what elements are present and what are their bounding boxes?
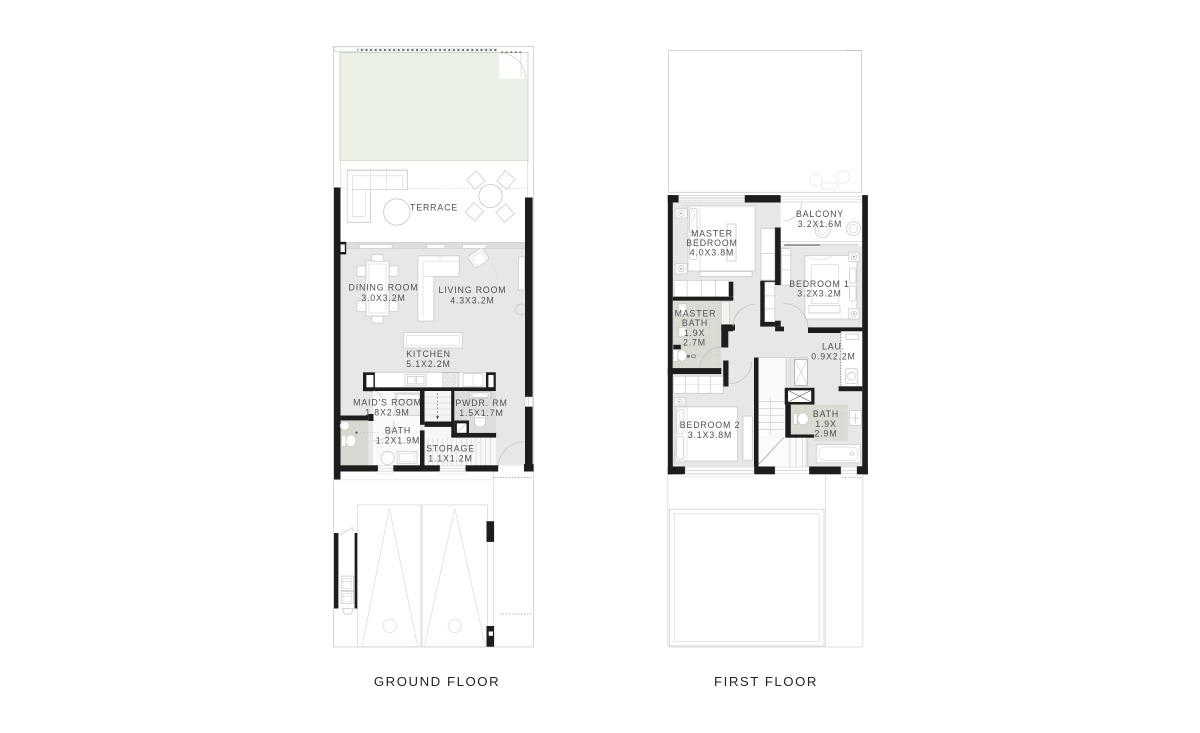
svg-text:MASTER: MASTER: [691, 229, 733, 239]
svg-text:KITCHEN: KITCHEN: [406, 349, 451, 359]
svg-text:5.1X2.2M: 5.1X2.2M: [406, 359, 450, 369]
svg-text:BEDROOM: BEDROOM: [686, 238, 737, 248]
svg-text:3.0X3.2M: 3.0X3.2M: [361, 293, 405, 303]
svg-text:BATH: BATH: [682, 318, 708, 328]
svg-text:PWDR. RM: PWDR. RM: [455, 398, 507, 408]
svg-text:1.2X1.9M: 1.2X1.9M: [376, 436, 420, 446]
svg-text:BATH: BATH: [385, 426, 411, 436]
svg-text:MASTER: MASTER: [675, 309, 717, 319]
svg-text:FIRST FLOOR: FIRST FLOOR: [714, 674, 818, 689]
svg-text:1.9X: 1.9X: [815, 419, 837, 429]
svg-text:3.2X1.6M: 3.2X1.6M: [798, 219, 842, 229]
svg-text:BEDROOM 1: BEDROOM 1: [789, 279, 849, 289]
svg-text:LAU.: LAU.: [822, 342, 845, 352]
svg-text:MAID'S ROOM: MAID'S ROOM: [353, 398, 422, 408]
svg-text:BALCONY: BALCONY: [796, 209, 844, 219]
svg-text:3.2X3.2M: 3.2X3.2M: [797, 289, 841, 299]
svg-text:TERRACE: TERRACE: [410, 203, 458, 213]
svg-text:3.1X3.8M: 3.1X3.8M: [688, 430, 732, 440]
svg-text:LIVING ROOM: LIVING ROOM: [438, 285, 506, 295]
svg-text:4.3X3.2M: 4.3X3.2M: [450, 296, 494, 306]
svg-text:1.5X1.7M: 1.5X1.7M: [459, 408, 503, 418]
svg-text:BEDROOM 2: BEDROOM 2: [680, 420, 740, 430]
svg-text:1.1X1.2M: 1.1X1.2M: [428, 454, 472, 464]
svg-text:GROUND FLOOR: GROUND FLOOR: [374, 674, 500, 689]
svg-text:DINING ROOM: DINING ROOM: [349, 283, 419, 293]
svg-text:4.0X3.8M: 4.0X3.8M: [690, 248, 734, 258]
svg-text:0.9X2.2M: 0.9X2.2M: [811, 351, 855, 361]
svg-text:BATH: BATH: [813, 409, 839, 419]
svg-text:2.7M: 2.7M: [683, 338, 706, 348]
svg-text:1.9X: 1.9X: [684, 328, 706, 338]
svg-text:2.9M: 2.9M: [815, 429, 838, 439]
svg-text:STORAGE: STORAGE: [426, 444, 475, 454]
